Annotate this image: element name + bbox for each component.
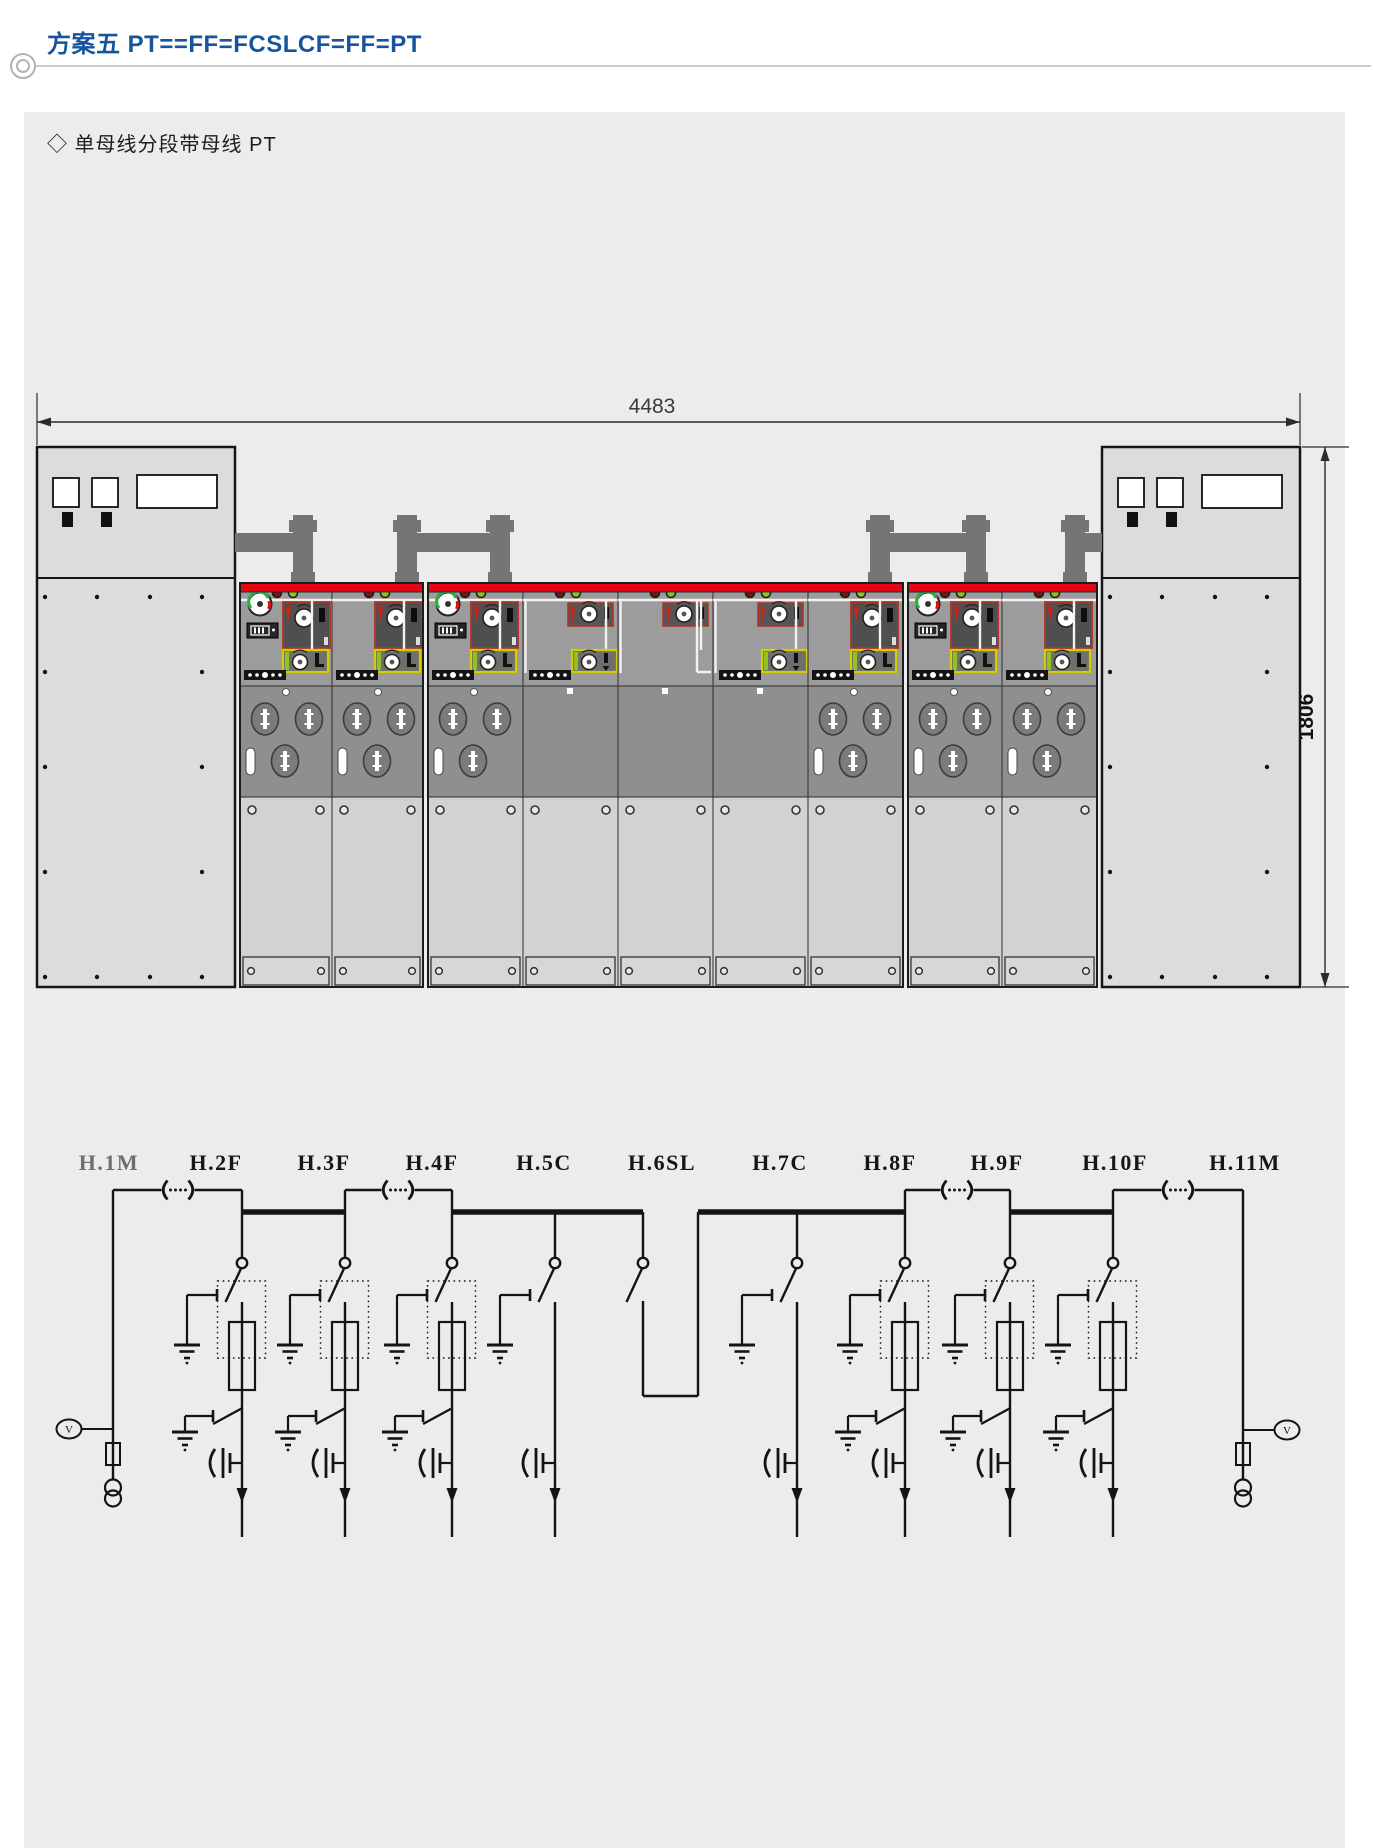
ground-icon [487,1345,513,1364]
feeder-label: H.3F [297,1150,350,1175]
breaker-module-icon [951,602,998,648]
switch-contact-icon [237,1258,247,1268]
cabinet-window [1157,478,1183,507]
fuse-handle-icon [914,748,923,775]
cable-termination-icon [1081,1448,1113,1478]
cabinet-window [92,478,118,507]
ground-icon [835,1432,861,1451]
switchgear-panel-H.4F [428,589,523,988]
red-stripe [908,583,1097,592]
feeder-H.5C: H.5C [487,1150,572,1537]
catalog-page: 方案五 PT==FF=FCSLCF=FF=PT ◇ 单母线分段带母线 PT 44… [0,0,1373,1848]
screw-icon [318,968,325,975]
kick-plate [716,957,805,985]
switch-contact-icon [340,1258,350,1268]
cabinet-nameplate [1202,475,1282,508]
dimension-height: 1806 [1295,447,1349,987]
cable-termination-icon [765,1448,797,1478]
feeder-H.6SL: H.6SL [627,1150,699,1396]
sf6-gauge-icon [249,592,272,616]
feeder-arrow-icon [447,1488,458,1503]
fuse-handle-icon [1008,748,1017,775]
cable-termination-icon [873,1448,905,1478]
switchgear-panel-H.10F [1002,589,1097,988]
fuse-handle-icon [434,748,443,775]
switch-contact-icon [900,1258,910,1268]
terminal-strip-icon [719,670,761,680]
earthing-module-icon [851,650,896,672]
switch-contact-icon [1108,1258,1118,1268]
screw-icon [887,806,895,814]
busbar-pipes [235,515,1102,583]
cabinet-window [53,478,79,507]
screw-icon [1083,968,1090,975]
switch-contact-icon [447,1258,457,1268]
feeder-arrow-icon [237,1488,248,1503]
bus-connector-icon [942,1181,972,1200]
pt-winding-icon [1235,1491,1251,1507]
breaker-module-icon [471,602,518,648]
red-stripe [240,583,423,592]
switchgear-panel-H.3F [332,589,423,988]
feeder-H.3F: H.3F [275,1150,369,1537]
screw-icon [816,806,824,814]
switchgear-block-3 [908,583,1097,987]
screw-icon [531,806,539,814]
ground-icon [1043,1432,1069,1451]
ground-icon [1045,1345,1071,1364]
kick-plate [243,957,329,985]
switchgear-panel-H.2F [240,589,332,988]
screw-icon [340,968,347,975]
feeder-H.1M: H.1MV [57,1150,140,1507]
red-stripe [428,583,903,592]
terminal-strip-icon [812,670,854,680]
voltmeter-letter: V [1283,1425,1291,1437]
ground-icon [172,1432,198,1451]
switchgear-panel-H.6SL [618,589,713,988]
cable-termination-icon [313,1448,345,1478]
fuse-handle-icon [246,748,255,775]
kick-plate [621,957,710,985]
feeder-label: H.9F [970,1150,1023,1175]
pt-winding-icon [105,1491,121,1507]
kick-plate [526,957,615,985]
kick-plate [911,957,999,985]
terminal-strip-icon [244,670,286,680]
ground-icon [384,1345,410,1364]
breaker-module-icon [375,602,422,648]
cable-termination-icon [978,1448,1010,1478]
screw-icon [792,806,800,814]
earthing-module-icon [572,650,617,672]
screw-icon [916,806,924,814]
ground-icon [940,1432,966,1451]
switchgear-panel-H.9F [908,589,1002,988]
ground-icon [837,1345,863,1364]
feeder-label: H.6SL [628,1150,696,1175]
dim-width-label: 4483 [629,395,676,418]
feeder-H.2F: H.2F [172,1150,266,1537]
cabinet-window [1118,478,1144,507]
feeder-arrow-icon [340,1488,351,1503]
feeder-H.7C: H.7C [729,1150,808,1537]
screw-icon [248,806,256,814]
feeder-H.10F: H.10F [1043,1150,1148,1537]
breaker-module-icon [283,602,330,648]
end-cabinet-left [37,447,235,987]
switch-contact-icon [638,1258,648,1268]
single-line-schematic: H.1MVH.2FH.3FH.4FH.5CH.6SLH.7CH.8FH.9FH.… [57,1150,1300,1537]
feeder-arrow-icon [550,1488,561,1503]
screw-icon [721,968,728,975]
terminal-strip-icon [529,670,571,680]
feeder-arrow-icon [900,1488,911,1503]
screw-icon [507,806,515,814]
feeder-label: H.8F [863,1150,916,1175]
feeder-label: H.11M [1209,1150,1281,1175]
screw-icon [699,968,706,975]
breaker-module-icon [851,602,898,648]
kick-plate [811,957,900,985]
ground-icon [275,1432,301,1451]
screw-icon [626,968,633,975]
screw-icon [697,806,705,814]
kick-plate [431,957,520,985]
feeder-label: H.2F [189,1150,242,1175]
screw-icon [604,968,611,975]
terminal-strip-icon [432,670,474,680]
digital-display-icon [247,623,278,638]
cable-termination-icon [210,1448,242,1478]
screw-icon [409,968,416,975]
switch-contact-icon [550,1258,560,1268]
ground-icon [942,1345,968,1364]
earthing-module-icon [375,650,420,672]
feeder-H.11M: H.11MV [1209,1150,1299,1507]
feeder-label: H.4F [405,1150,458,1175]
screw-icon [509,968,516,975]
technical-drawing: 44831806H.1MVH.2FH.3FH.4FH.5CH.6SLH.7CH.… [0,0,1373,1848]
feeder-arrow-icon [1005,1488,1016,1503]
dimension-width: 4483 [37,393,1300,445]
cable-termination-icon [420,1448,452,1478]
switch-contact-icon [792,1258,802,1268]
terminal-strip-icon [336,670,378,680]
breaker-module-icon [1045,602,1092,648]
terminal-strip-icon [1006,670,1048,680]
digital-display-icon [915,623,946,638]
ground-icon [729,1345,755,1364]
sf6-gauge-icon [437,592,460,616]
cabinet-nameplate [137,475,217,508]
screw-icon [721,806,729,814]
screw-icon [436,968,443,975]
earthing-module-icon [951,650,996,672]
ground-icon [277,1345,303,1364]
elevation-drawing: 44831806 [37,393,1349,987]
feeder-H.4F: H.4F [382,1150,476,1537]
terminal-strip-icon [912,670,954,680]
bus-connector-icon [1163,1181,1193,1200]
earthing-module-icon [283,650,328,672]
earthing-module-icon [471,650,516,672]
feeder-label: H.7C [752,1150,808,1175]
screw-icon [816,968,823,975]
fuse-handle-icon [814,748,823,775]
screw-icon [626,806,634,814]
feeder-label: H.10F [1082,1150,1148,1175]
switchgear-panel-H.5C [523,589,618,988]
feeder-arrow-icon [792,1488,803,1503]
feeder-H.8F: H.8F [835,1150,929,1537]
screw-icon [407,806,415,814]
screw-icon [248,968,255,975]
screw-icon [436,806,444,814]
feeder-label: H.5C [516,1150,572,1175]
bus-connector-icon [383,1181,413,1200]
feeder-arrow-icon [1108,1488,1119,1503]
screw-icon [1081,806,1089,814]
switch-contact-icon [1005,1258,1015,1268]
screw-icon [531,968,538,975]
switchgear-block-2 [428,583,903,987]
earthing-module-icon [762,650,807,672]
screw-icon [1010,806,1018,814]
feeder-label: H.1M [79,1150,139,1175]
screw-icon [316,806,324,814]
digital-display-icon [435,623,466,638]
ground-icon [382,1432,408,1451]
earthing-module-icon [1045,650,1090,672]
cable-termination-icon [523,1448,555,1478]
kick-plate [1005,957,1094,985]
kick-plate [335,957,420,985]
switchgear-panel-H.8F [808,589,903,988]
ground-icon [174,1345,200,1364]
screw-icon [340,806,348,814]
screw-icon [889,968,896,975]
bus-connector-icon [163,1181,193,1200]
screw-icon [986,806,994,814]
switchgear-block-1 [240,583,423,987]
busbar-lines [113,1181,1243,1213]
switchgear-panel-H.7C [713,589,808,988]
screw-icon [988,968,995,975]
sf6-gauge-icon [917,592,940,616]
fuse-handle-icon [338,748,347,775]
screw-icon [794,968,801,975]
screw-icon [602,806,610,814]
end-cabinet-right [1102,447,1300,987]
screw-icon [916,968,923,975]
feeder-H.9F: H.9F [940,1150,1034,1537]
screw-icon [1010,968,1017,975]
voltmeter-letter: V [65,1424,73,1436]
